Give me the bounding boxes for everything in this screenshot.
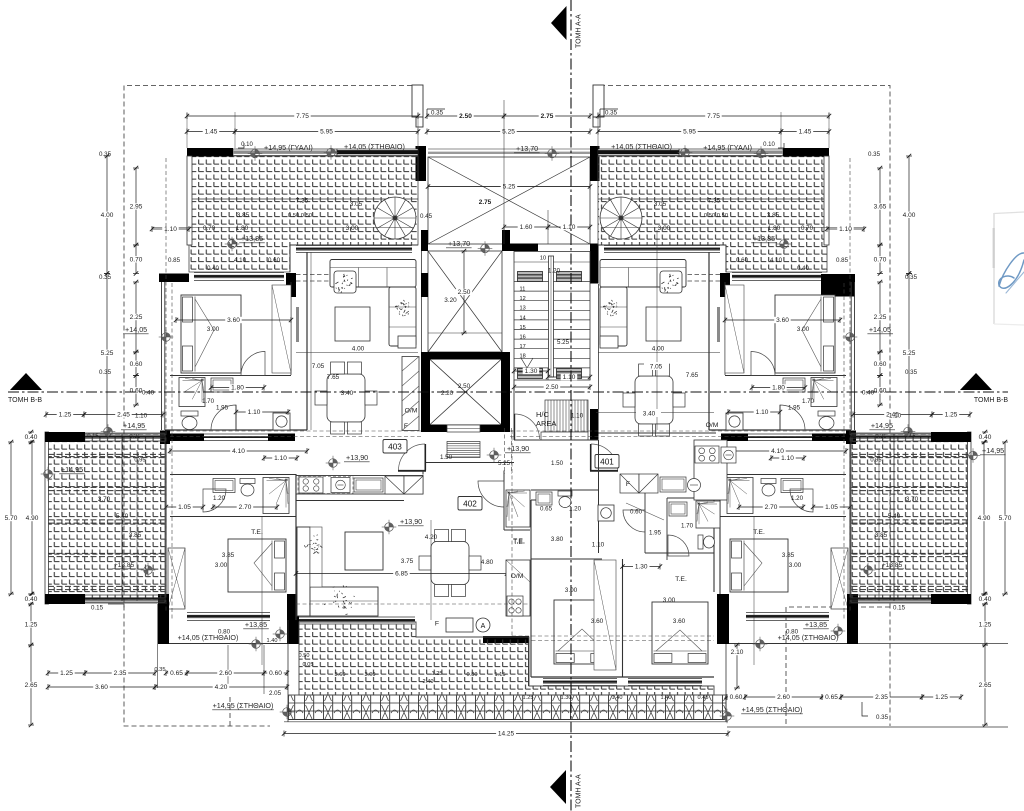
svg-text:1.25: 1.25	[979, 622, 992, 629]
svg-text:0.40: 0.40	[797, 266, 809, 272]
svg-text:3.85: 3.85	[875, 532, 888, 539]
svg-text:1.95: 1.95	[216, 405, 229, 412]
svg-text:1.10: 1.10	[889, 413, 902, 420]
svg-text:0.70: 0.70	[801, 225, 814, 232]
svg-text:0.60: 0.60	[269, 670, 282, 677]
svg-text:2.70: 2.70	[239, 504, 252, 511]
svg-text:4.10: 4.10	[234, 257, 247, 264]
svg-text:H/C: H/C	[536, 410, 550, 419]
svg-text:1.25: 1.25	[60, 670, 73, 677]
svg-text:1.50: 1.50	[551, 460, 564, 467]
svg-text:0.60: 0.60	[730, 694, 743, 701]
svg-text:+: +	[697, 502, 701, 508]
svg-text:1.45: 1.45	[205, 129, 218, 136]
svg-text:+14,95: +14,95	[871, 421, 893, 430]
svg-text:O/M: O/M	[706, 422, 719, 429]
svg-text:1.30: 1.30	[635, 564, 648, 571]
svg-text:+13,85: +13,85	[245, 620, 267, 629]
svg-text:13: 13	[520, 306, 526, 312]
svg-text:3.00: 3.00	[346, 225, 359, 232]
svg-text:3.85: 3.85	[782, 552, 795, 559]
svg-text:TOMH A-A: TOMH A-A	[576, 774, 583, 808]
svg-text:2.70: 2.70	[765, 504, 778, 511]
svg-text:1.95: 1.95	[788, 405, 801, 412]
svg-text:0.40: 0.40	[25, 596, 38, 603]
svg-text:1.25: 1.25	[523, 695, 534, 701]
svg-text:2.35: 2.35	[875, 694, 888, 701]
svg-text:+13,70: +13,70	[516, 144, 538, 153]
svg-text:7.35: 7.35	[296, 198, 309, 205]
svg-text:1.40: 1.40	[661, 695, 672, 701]
svg-text:0.85: 0.85	[836, 257, 849, 264]
svg-text:1.05: 1.05	[825, 504, 838, 511]
svg-text:0.70: 0.70	[130, 256, 143, 263]
svg-text:0.35: 0.35	[876, 714, 889, 721]
svg-text:2.10: 2.10	[731, 649, 744, 656]
svg-text:2.75: 2.75	[479, 199, 492, 206]
svg-text:3.00: 3.00	[658, 225, 671, 232]
svg-text:2.50: 2.50	[459, 113, 472, 120]
svg-text:1.10: 1.10	[135, 413, 148, 420]
svg-text:3.60: 3.60	[673, 618, 686, 625]
svg-text:+14,05: +14,05	[869, 325, 891, 334]
svg-text:2.35: 2.35	[114, 670, 127, 677]
svg-text:1.80: 1.80	[772, 385, 785, 392]
svg-text:15: 15	[520, 325, 526, 331]
svg-text:4.00: 4.00	[352, 346, 365, 353]
svg-text:F: F	[435, 621, 439, 628]
svg-text:3.85: 3.85	[222, 552, 235, 559]
svg-text:+14,95 (ΓΥΑΛΙ): +14,95 (ΓΥΑΛΙ)	[264, 143, 313, 152]
svg-text:+13,90: +13,90	[507, 444, 529, 453]
svg-text:1.10: 1.10	[592, 542, 605, 549]
svg-text:2.25: 2.25	[130, 314, 143, 321]
svg-text:4.20: 4.20	[215, 684, 228, 691]
svg-text:TOMH B-B: TOMH B-B	[8, 397, 42, 404]
svg-text:+: +	[728, 478, 732, 484]
svg-text:+14,05 (ΣΤΗΘΑΙΟ): +14,05 (ΣΤΗΘΑΙΟ)	[778, 633, 839, 642]
svg-text:11: 11	[520, 287, 526, 293]
svg-text:1.10: 1.10	[563, 374, 576, 381]
svg-text:0.60: 0.60	[268, 257, 281, 264]
svg-text:0.40: 0.40	[979, 434, 992, 441]
svg-text:7.75: 7.75	[707, 113, 720, 120]
svg-text:0.60: 0.60	[736, 257, 749, 264]
svg-text:5.40: 5.40	[116, 513, 129, 520]
svg-text:4.90: 4.90	[26, 515, 39, 522]
svg-text:0.35: 0.35	[868, 151, 881, 158]
svg-text:0.40: 0.40	[25, 434, 38, 441]
svg-text:0.40: 0.40	[862, 390, 875, 397]
svg-text:+14,95: +14,95	[61, 465, 83, 474]
svg-text:7.65: 7.65	[327, 374, 340, 381]
svg-text:4.10: 4.10	[770, 257, 783, 264]
svg-text:1.25: 1.25	[945, 412, 958, 419]
svg-text:3.00: 3.00	[365, 672, 376, 678]
svg-text:+14,05: +14,05	[125, 325, 147, 334]
svg-text:5.70: 5.70	[5, 515, 18, 522]
svg-text:0.35: 0.35	[431, 110, 444, 117]
svg-text:4.80: 4.80	[481, 559, 494, 566]
svg-text:5.25: 5.25	[903, 350, 916, 357]
svg-text:3.85: 3.85	[129, 532, 142, 539]
svg-text:3.70: 3.70	[98, 496, 111, 503]
svg-text:5.25: 5.25	[557, 339, 570, 346]
svg-text:4.90: 4.90	[978, 515, 991, 522]
svg-text:F: F	[626, 481, 630, 488]
svg-text:4.00: 4.00	[903, 212, 916, 219]
svg-text:2.20: 2.20	[441, 390, 454, 397]
svg-text:3.60: 3.60	[591, 618, 604, 625]
svg-text:+13,85: +13,85	[805, 620, 827, 629]
svg-text:0.60: 0.60	[130, 387, 143, 394]
svg-text:1.25: 1.25	[25, 622, 38, 629]
svg-text:0.35: 0.35	[99, 151, 112, 158]
svg-text:3.00: 3.00	[215, 562, 228, 569]
svg-text:3.05: 3.05	[350, 201, 363, 208]
svg-text:+14,05 (ΣΤΗΘΑΙΟ): +14,05 (ΣΤΗΘΑΙΟ)	[611, 142, 672, 151]
svg-text:1.80: 1.80	[231, 385, 244, 392]
svg-text:5.25: 5.25	[101, 350, 114, 357]
svg-text:T.E.: T.E.	[675, 576, 687, 583]
svg-text:0.35: 0.35	[99, 369, 112, 376]
svg-text:+14,95 (ΣΤΗΘΑΙΟ): +14,95 (ΣΤΗΘΑΙΟ)	[213, 701, 274, 710]
svg-text:+: +	[200, 378, 204, 384]
svg-text:7.35: 7.35	[708, 198, 721, 205]
svg-text:1.05: 1.05	[178, 504, 191, 511]
svg-text:17: 17	[520, 344, 526, 350]
svg-text:403: 403	[388, 443, 402, 452]
svg-text:3.60: 3.60	[227, 317, 240, 324]
svg-text:1.60: 1.60	[520, 224, 533, 231]
svg-text:1.80: 1.80	[236, 225, 249, 232]
svg-text:1.25: 1.25	[935, 694, 948, 701]
svg-text:0.35: 0.35	[154, 667, 165, 673]
svg-text:3.85: 3.85	[237, 212, 250, 219]
svg-text:18: 18	[520, 354, 526, 360]
svg-text:1.10: 1.10	[571, 413, 584, 420]
svg-text:0.85: 0.85	[168, 257, 181, 264]
svg-text:2.45: 2.45	[117, 412, 130, 419]
svg-text:5.95: 5.95	[683, 129, 696, 136]
svg-text:3.65: 3.65	[874, 204, 887, 211]
svg-text:0.70: 0.70	[203, 225, 216, 232]
svg-text:2.65: 2.65	[979, 682, 992, 689]
svg-text:5.95: 5.95	[320, 129, 333, 136]
svg-text:1.45: 1.45	[799, 129, 812, 136]
svg-text:+13,85: +13,85	[241, 234, 263, 243]
svg-text:0.10: 0.10	[241, 142, 253, 148]
svg-text:402: 402	[463, 500, 477, 509]
svg-text:2.50: 2.50	[458, 383, 471, 390]
svg-text:TOMH B-B: TOMH B-B	[974, 397, 1008, 404]
svg-text:1.25: 1.25	[432, 671, 443, 677]
svg-text:12: 12	[520, 296, 526, 302]
svg-text:0.65: 0.65	[170, 670, 183, 677]
svg-text:2.25: 2.25	[874, 314, 887, 321]
svg-text:0.35: 0.35	[905, 369, 918, 376]
svg-text:O/M: O/M	[511, 573, 524, 580]
svg-text:0.15: 0.15	[91, 605, 104, 612]
svg-text:0.40: 0.40	[979, 596, 992, 603]
svg-text:2.65: 2.65	[25, 682, 38, 689]
svg-text:5.25: 5.25	[503, 184, 516, 191]
svg-text:10: 10	[540, 256, 546, 262]
svg-text:1.10: 1.10	[563, 224, 576, 231]
svg-text:+14,95 (ΣΤΗΘΑΙΟ): +14,95 (ΣΤΗΘΑΙΟ)	[742, 705, 803, 714]
svg-text:3.00: 3.00	[663, 597, 676, 604]
svg-text:3.40: 3.40	[341, 390, 354, 397]
svg-text:A: A	[481, 623, 486, 630]
svg-text:0.60: 0.60	[874, 361, 887, 368]
svg-text:T.E.: T.E.	[251, 529, 263, 536]
svg-text:T.E.: T.E.	[513, 538, 525, 545]
svg-text:TOMH A-A: TOMH A-A	[576, 14, 583, 48]
svg-text:1.70: 1.70	[802, 398, 815, 405]
svg-text:2.95: 2.95	[130, 204, 143, 211]
svg-text:3.00: 3.00	[789, 562, 802, 569]
svg-text:0.15: 0.15	[893, 605, 906, 612]
svg-text:+13,85: +13,85	[753, 234, 775, 243]
svg-text:1.20: 1.20	[548, 268, 561, 275]
svg-text:1.30: 1.30	[525, 368, 538, 375]
svg-text:0.95: 0.95	[134, 458, 145, 464]
svg-text:2.50: 2.50	[546, 384, 559, 391]
svg-text:2.05: 2.05	[269, 690, 282, 697]
svg-text:5.25: 5.25	[498, 460, 511, 467]
svg-text:401: 401	[600, 458, 614, 467]
svg-text:6.85: 6.85	[395, 571, 408, 578]
svg-text:5.40: 5.40	[888, 513, 901, 520]
svg-text:4.10: 4.10	[771, 448, 784, 455]
svg-text:+: +	[812, 378, 816, 384]
svg-text:4.00: 4.00	[652, 346, 665, 353]
svg-text:3.00: 3.00	[207, 326, 220, 333]
svg-text:3.80: 3.80	[551, 536, 564, 543]
svg-text:+13,90: +13,90	[346, 453, 368, 462]
svg-text:1.25: 1.25	[59, 412, 72, 419]
svg-text:+: +	[284, 478, 288, 484]
svg-text:4.10: 4.10	[232, 448, 245, 455]
svg-text:F: F	[404, 423, 408, 430]
svg-text:0.60: 0.60	[874, 387, 887, 394]
svg-text:0.60: 0.60	[130, 361, 143, 368]
svg-text:+14,95: +14,95	[982, 446, 1004, 455]
svg-text:+: +	[507, 491, 511, 497]
svg-text:0.40: 0.40	[142, 390, 155, 397]
svg-text:3.20: 3.20	[444, 297, 457, 304]
svg-text:0.95: 0.95	[870, 458, 881, 464]
svg-text:T.E.: T.E.	[753, 529, 765, 536]
svg-text:2.40: 2.40	[423, 679, 434, 685]
svg-text:+14,05 (ΣΤΗΘΑΙΟ): +14,05 (ΣΤΗΘΑΙΟ)	[178, 633, 239, 642]
svg-text:+14,95: +14,95	[123, 421, 145, 430]
svg-text:1.10: 1.10	[756, 409, 769, 416]
svg-text:3.00: 3.00	[797, 326, 810, 333]
svg-text:3.60: 3.60	[335, 672, 346, 678]
svg-text:3.60: 3.60	[776, 317, 789, 324]
svg-text:1.20: 1.20	[213, 495, 226, 502]
svg-text:0.45: 0.45	[420, 213, 433, 220]
svg-text:1.80: 1.80	[768, 225, 781, 232]
svg-text:1.30: 1.30	[561, 695, 572, 701]
svg-text:0.10: 0.10	[763, 142, 775, 148]
svg-text:14.25: 14.25	[498, 731, 515, 738]
svg-text:0.40: 0.40	[207, 266, 219, 272]
svg-text:1.15: 1.15	[495, 672, 506, 678]
svg-text:AREA: AREA	[536, 419, 556, 428]
svg-text:1.70: 1.70	[681, 523, 694, 530]
svg-text:5.70: 5.70	[999, 515, 1012, 522]
svg-text:3.75: 3.75	[401, 558, 414, 565]
svg-text:3.40: 3.40	[643, 411, 656, 418]
svg-text:2.50: 2.50	[458, 289, 471, 296]
svg-text:+13,85: +13,85	[882, 562, 903, 569]
svg-text:0.35: 0.35	[605, 110, 618, 117]
svg-text:0.45: 0.45	[698, 695, 709, 701]
svg-text:+14,95 (ΓΥΑΛΙ): +14,95 (ΓΥΑΛΙ)	[703, 143, 752, 152]
svg-text:O/M: O/M	[405, 408, 418, 415]
svg-text:+13,90: +13,90	[400, 517, 422, 526]
svg-text:0.50 0.50: 0.50 0.50	[288, 213, 312, 219]
svg-text:1.10: 1.10	[781, 455, 794, 462]
svg-text:1.95: 1.95	[649, 530, 662, 537]
svg-text:4.00: 4.00	[101, 212, 114, 219]
svg-text:+13,70: +13,70	[448, 239, 470, 248]
svg-text:1.50: 1.50	[440, 454, 453, 461]
svg-text:+14,05 (ΣΤΗΘΑΙΟ): +14,05 (ΣΤΗΘΑΙΟ)	[344, 142, 405, 151]
svg-text:+13,85: +13,85	[114, 562, 135, 569]
svg-text:7.65: 7.65	[686, 372, 699, 379]
svg-text:1.10: 1.10	[248, 409, 261, 416]
svg-text:2.60: 2.60	[777, 694, 790, 701]
svg-text:1.10: 1.10	[274, 455, 287, 462]
svg-text:0.80: 0.80	[467, 672, 478, 678]
svg-text:2.75: 2.75	[541, 113, 554, 120]
svg-text:3.60: 3.60	[95, 684, 108, 691]
svg-text:3.85: 3.85	[767, 212, 780, 219]
svg-text:1.70: 1.70	[202, 398, 215, 405]
svg-text:1.40: 1.40	[612, 695, 623, 701]
svg-text:0.35: 0.35	[905, 274, 918, 281]
svg-text:2.60: 2.60	[219, 670, 232, 677]
svg-text:14: 14	[520, 315, 526, 321]
svg-text:0.65: 0.65	[540, 506, 553, 513]
svg-text:3.70: 3.70	[906, 496, 919, 503]
svg-text:16: 16	[520, 335, 526, 341]
svg-text:1.20: 1.20	[791, 495, 804, 502]
svg-text:0.70: 0.70	[874, 256, 887, 263]
svg-text:7.05: 7.05	[312, 363, 325, 370]
svg-text:0.50 0.50: 0.50 0.50	[704, 213, 728, 219]
svg-text:7.75: 7.75	[296, 113, 309, 120]
svg-text:3.05: 3.05	[654, 201, 667, 208]
svg-text:7.05: 7.05	[650, 364, 663, 371]
svg-text:0.65: 0.65	[825, 694, 838, 701]
